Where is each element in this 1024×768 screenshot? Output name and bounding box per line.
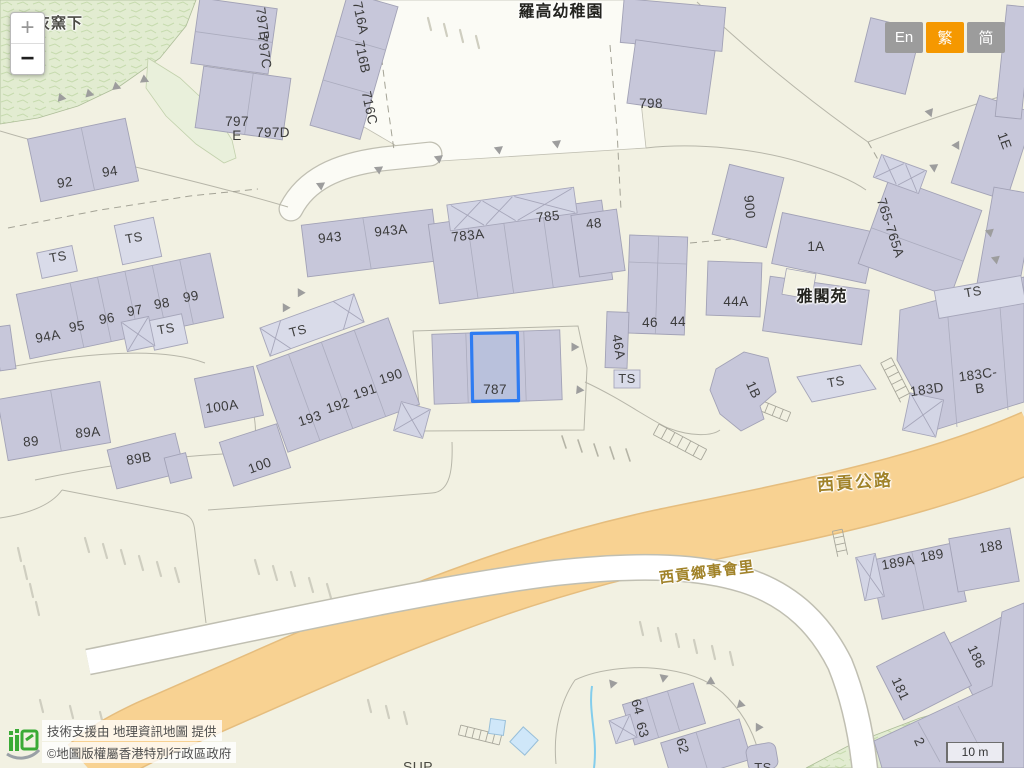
selected-lot-787[interactable]	[471, 333, 518, 402]
attribution-line-support: 技術支援由 地理資訊地圖 提供	[42, 720, 222, 741]
attribution-suffix: 提供	[192, 725, 217, 739]
scale-bar: 10 m	[946, 742, 1004, 763]
zoom-out-button[interactable]: −	[11, 43, 44, 74]
zoom-in-button[interactable]: +	[11, 13, 44, 43]
zoom-control: + −	[10, 12, 45, 75]
language-button-en[interactable]: En	[885, 22, 923, 53]
attribution: 技術支援由 地理資訊地圖 提供 ©地圖版權屬香港特別行政區政府	[42, 719, 236, 763]
language-button-traditional[interactable]: 繁	[926, 22, 964, 53]
map-app: 灰窯下 羅高幼稚園 雅閣苑 西貢公路 西貢鄉事會里 92 94 94A 95 9…	[0, 0, 1024, 768]
attribution-prefix: 技術支援由	[47, 725, 110, 739]
attribution-link-geoinfo-map[interactable]: 地理資訊地圖	[113, 725, 188, 739]
language-button-simplified[interactable]: 简	[967, 22, 1005, 53]
language-switcher: En 繁 简	[885, 22, 1005, 53]
map-tiles	[0, 0, 1024, 768]
geoinfo-map-logo-icon[interactable]	[6, 725, 40, 762]
attribution-copyright: ©地圖版權屬香港特別行政區政府	[42, 742, 236, 763]
